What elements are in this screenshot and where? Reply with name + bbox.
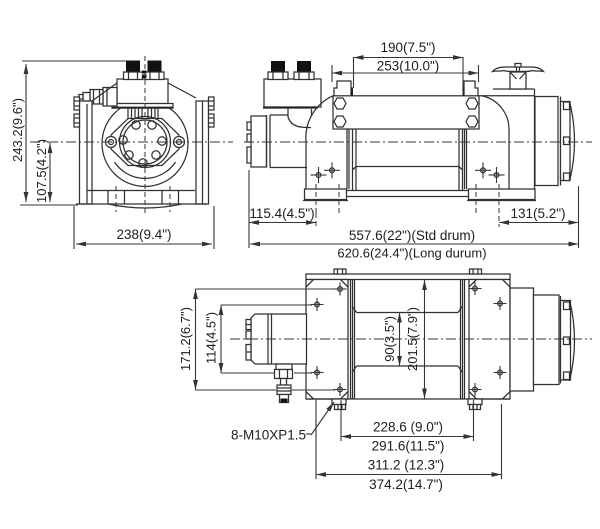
- svg-text:8-M10XP1.5: 8-M10XP1.5: [231, 428, 306, 443]
- svg-text:374.2(14.7"): 374.2(14.7"): [369, 477, 443, 492]
- svg-text:291.6(11.5"): 291.6(11.5"): [372, 439, 445, 454]
- svg-text:253(10.0"): 253(10.0"): [377, 59, 440, 74]
- svg-text:171.2(6.7"): 171.2(6.7"): [178, 307, 193, 371]
- svg-text:107.5(4.2"): 107.5(4.2"): [34, 139, 49, 203]
- svg-text:557.6(22")(Std drum): 557.6(22")(Std drum): [349, 228, 475, 243]
- svg-text:114(4.5"): 114(4.5"): [204, 312, 219, 364]
- svg-text:190(7.5"): 190(7.5"): [380, 40, 435, 55]
- svg-text:620.6(24.4")(Long durum): 620.6(24.4")(Long durum): [337, 246, 486, 261]
- svg-text:228.6 (9.0"): 228.6 (9.0"): [373, 420, 443, 435]
- svg-text:311.2 (12.3"): 311.2 (12.3"): [368, 458, 445, 473]
- svg-text:243.2(9.6"): 243.2(9.6"): [10, 98, 25, 162]
- svg-text:131(5.2"): 131(5.2"): [510, 206, 565, 221]
- svg-text:115.4(4.5"): 115.4(4.5"): [249, 206, 314, 221]
- svg-text:238(9.4"): 238(9.4"): [116, 227, 171, 242]
